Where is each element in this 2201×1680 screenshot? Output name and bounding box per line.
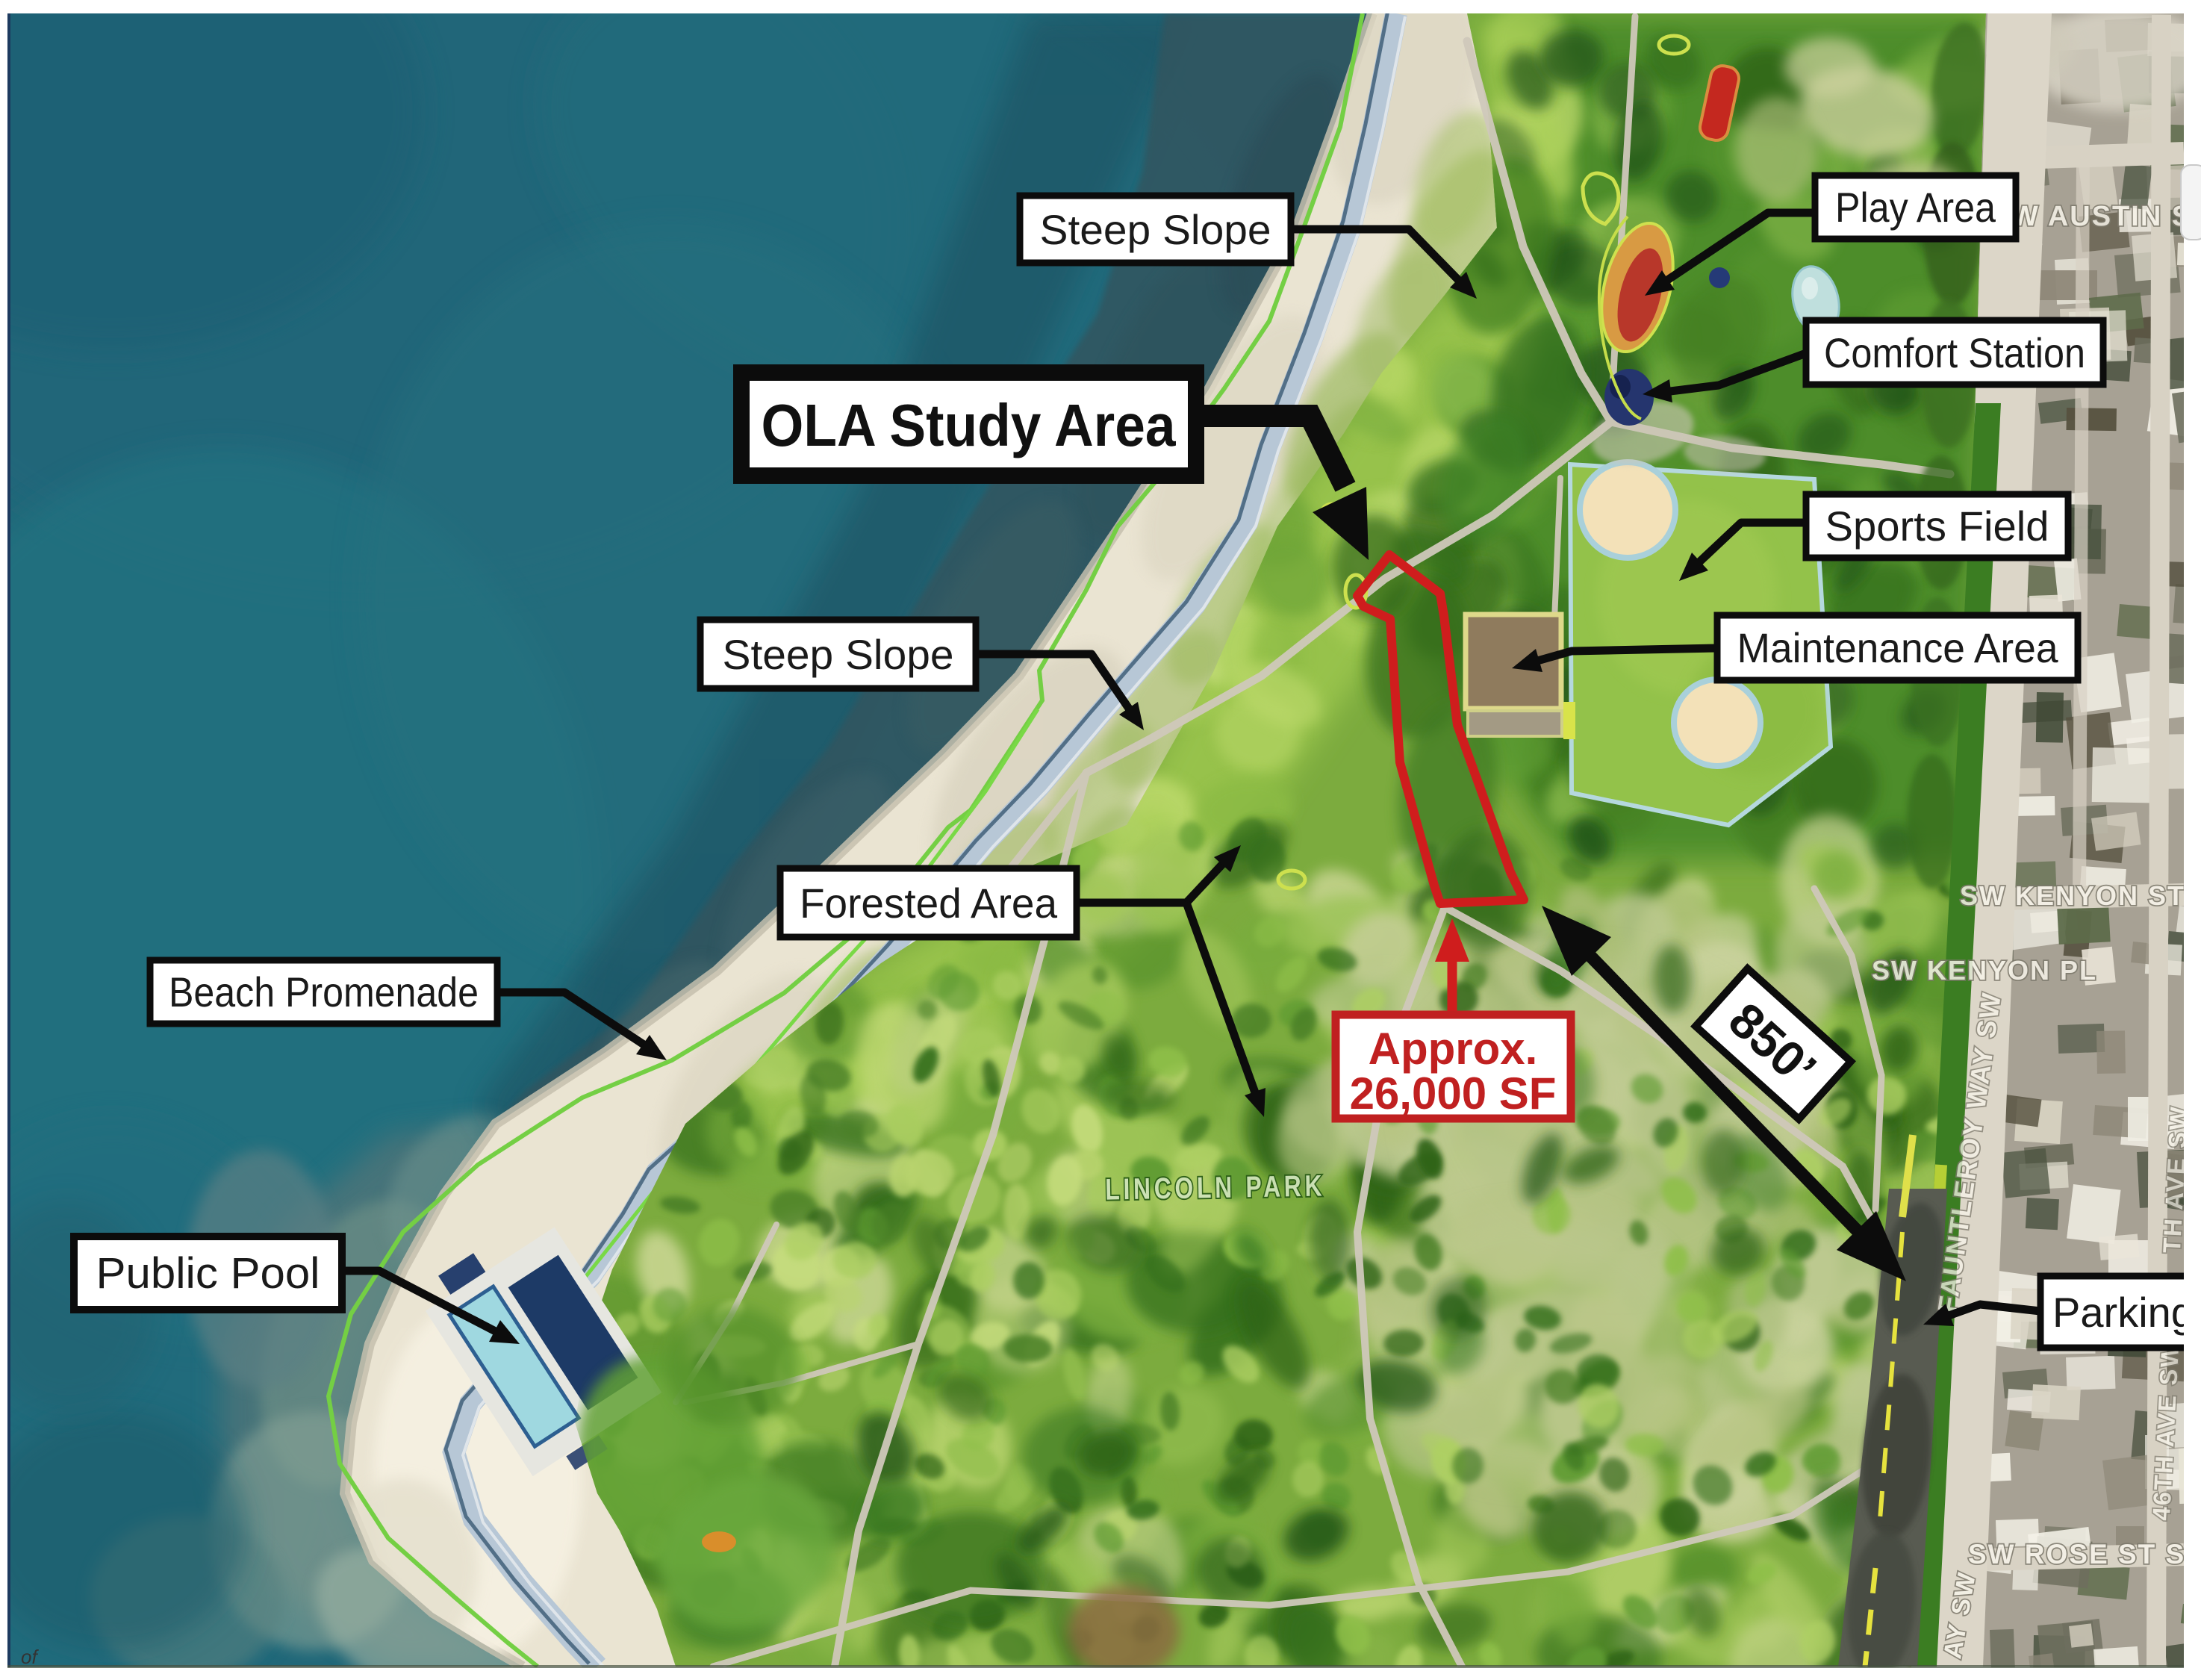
svg-text:Sports Field: Sports Field [1825, 503, 2049, 550]
svg-text:Maintenance Area: Maintenance Area [1737, 624, 2059, 671]
svg-text:Approx.: Approx. [1369, 1024, 1538, 1074]
svg-text:26,000 SF: 26,000 SF [1350, 1068, 1557, 1119]
svg-text:Forested Area: Forested Area [800, 880, 1058, 927]
svg-text:SW KENYON PL: SW KENYON PL [1872, 955, 2097, 986]
svg-text:Steep Slope: Steep Slope [1040, 206, 1271, 253]
svg-text:Parking: Parking [2052, 1289, 2194, 1336]
svg-text:SW ROSE ST SW: SW ROSE ST SW [1968, 1539, 2201, 1569]
svg-text:OLA Study Area: OLA Study Area [762, 392, 1176, 458]
svg-text:SW KENYON ST S: SW KENYON ST S [1960, 880, 2201, 911]
svg-text:LINCOLN PARK: LINCOLN PARK [1105, 1169, 1326, 1206]
svg-text:of: of [21, 1646, 39, 1668]
svg-text:Play Area: Play Area [1835, 184, 1996, 231]
svg-text:W AUSTIN S: W AUSTIN S [2011, 201, 2192, 232]
svg-text:Beach Promenade: Beach Promenade [169, 968, 479, 1015]
svg-text:Steep Slope: Steep Slope [723, 631, 954, 678]
svg-text:Public Pool: Public Pool [96, 1249, 320, 1298]
svg-text:Comfort Station: Comfort Station [1824, 329, 2085, 376]
